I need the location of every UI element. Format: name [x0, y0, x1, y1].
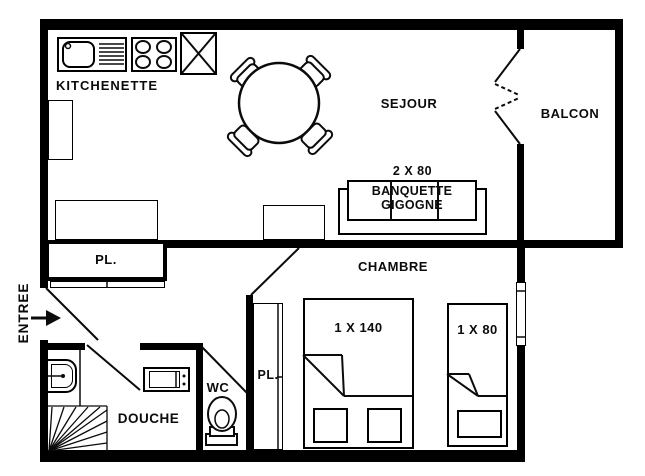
douche-label: DOUCHE [106, 411, 191, 426]
wall-sejour-balcony-upper [517, 29, 524, 49]
banquette-label: BANQUETTE GIGOGNE [347, 184, 477, 212]
wall-sejour-balcony-lower [517, 144, 524, 243]
floor-plan: KITCHENETTE SEJOUR BALCON 2 X 80 BANQUET… [0, 0, 645, 476]
bed-single-size-label: 1 X 80 [445, 322, 510, 337]
round-table-icon [239, 63, 319, 143]
washbasin-bowl [51, 364, 73, 388]
wall-balcony-bottom [518, 240, 623, 248]
wall-balcony-right [615, 19, 623, 248]
sink-bowl [62, 41, 95, 68]
bed-double-pillow-left [313, 408, 348, 443]
sideboard-center [263, 205, 325, 240]
balcony-door-leaf-top [495, 49, 520, 82]
stove [131, 37, 177, 72]
kitchen-cabinet [48, 100, 73, 160]
banquette-label-line2: GIGOGNE [347, 198, 477, 212]
balcony-door-swing-top [495, 84, 519, 95]
wall-wc-left [196, 343, 203, 452]
balcony-door-swing-bottom [495, 98, 519, 109]
wall-right-above-window [517, 248, 525, 282]
closet-hall-doors [50, 281, 165, 288]
fridge-column [180, 32, 217, 75]
wc-label: WC [196, 380, 240, 395]
chair-sw-icon [226, 122, 262, 158]
sideboard-left [55, 200, 158, 240]
stairs-fan-icon [48, 406, 107, 452]
closet-corridor-label: PL. [250, 368, 286, 382]
dining-set [226, 54, 334, 158]
entree-label: ENTREE [16, 281, 32, 345]
chair-ne-icon [296, 54, 332, 90]
douche-door-leaf [87, 345, 140, 390]
bed-single-pillow [457, 410, 502, 438]
wall-douche-top-left [40, 343, 85, 350]
banquette-label-line1: BANQUETTE [347, 184, 477, 198]
bed-double-size-label: 1 X 140 [303, 320, 414, 335]
banquette-size-label: 2 X 80 [338, 164, 487, 178]
toilet-icon [206, 397, 237, 445]
chambre-door-leaf [251, 248, 299, 295]
kitchenette-label: KITCHENETTE [56, 78, 158, 93]
chambre-label: CHAMBRE [338, 259, 448, 274]
sejour-label: SEJOUR [354, 96, 464, 111]
bed-double-pillow-right [367, 408, 402, 443]
chair-se-icon [298, 120, 334, 156]
closet-hall-label: PL. [45, 252, 167, 267]
entrance-arrow-icon [31, 310, 61, 326]
wall-right-below-window [517, 346, 525, 452]
balcony-door-leaf-bottom [495, 111, 520, 144]
balcon-label: BALCON [524, 106, 616, 121]
chair-nw-icon [229, 56, 265, 92]
washing-machine-drum [149, 371, 180, 388]
wall-top [40, 19, 623, 30]
wall-bottom [40, 450, 525, 462]
entrance-door-leaf [46, 288, 98, 340]
wall-douche-top-right [140, 343, 203, 350]
window-chambre [516, 282, 526, 346]
